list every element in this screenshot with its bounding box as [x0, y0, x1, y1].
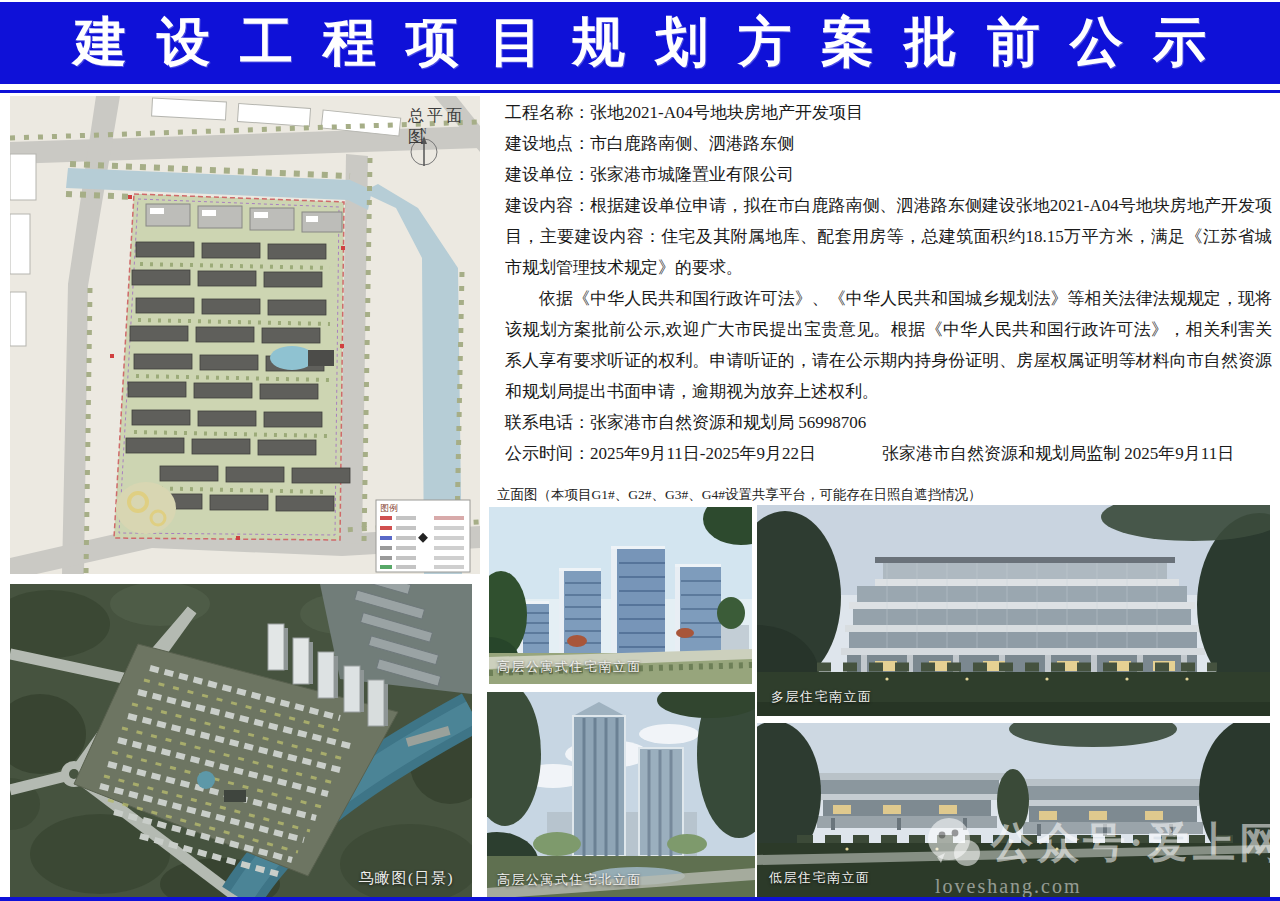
field-label: 建设内容：	[505, 196, 590, 215]
field-value: 根据建设单位申请，拟在市白鹿路南侧、泗港路东侧建设张地2021-A04号地块房地…	[505, 196, 1272, 277]
notice-poster: 建设工程项目规划方案批前公示	[0, 0, 1280, 901]
field-value: 张家港市城隆置业有限公司	[590, 165, 794, 184]
publicity-value: 2025年9月11日-2025年9月22日	[590, 444, 816, 463]
birdseye-illustration	[10, 584, 472, 898]
site-plan-illustration: N 图例	[10, 96, 480, 574]
birdseye-caption: 鸟瞰图(日景)	[359, 869, 455, 888]
field-label: 建设地点：	[505, 134, 590, 153]
contact-value: 张家港市自然资源和规划局 56998706	[590, 413, 866, 432]
notice-field: 建设单位：张家港市城隆置业有限公司	[505, 159, 1272, 190]
contact-label: 联系电话：	[505, 413, 590, 432]
plan-clubhouse	[308, 350, 334, 366]
birdseye-pond	[197, 771, 215, 789]
banner: 建设工程项目规划方案批前公示	[0, 2, 1280, 84]
notice-field: 建设内容：根据建设单位申请，拟在市白鹿路南侧、泗港路东侧建设张地2021-A04…	[505, 190, 1272, 283]
highrise-south-panel: 高层公寓式住宅南立面	[489, 507, 752, 684]
highrise-south-caption: 高层公寓式住宅南立面	[497, 658, 642, 676]
publicity-line: 公示时间：2025年9月11日-2025年9月22日张家港市自然资源和规划局监制…	[505, 438, 1272, 469]
lowrise-south-caption: 低层住宅南立面	[769, 869, 871, 887]
notice-field: 工程名称：张地2021-A04号地块房地产开发项目	[505, 97, 1272, 128]
highrise-north-caption: 高层公寓式住宅北立面	[497, 871, 642, 889]
banner-underline	[0, 90, 1280, 93]
multistory-south-caption: 多层住宅南立面	[771, 688, 873, 706]
site-plan-title: 总平面图	[408, 106, 480, 148]
supervision-text: 张家港市自然资源和规划局监制 2025年9月11日	[882, 444, 1234, 463]
plan-pond	[270, 346, 314, 370]
lowrise-south-panel: 低层住宅南立面 公众号·爱上网 loveshang.com	[757, 723, 1270, 899]
plan-legend: 图例	[376, 500, 470, 572]
publicity-label: 公示时间：	[505, 444, 590, 463]
legal-paragraph: 依据《中华人民共和国行政许可法》、《中华人民共和国城乡规划法》等相关法律法规规定…	[505, 283, 1272, 407]
multistory-south-panel: 多层住宅南立面	[757, 505, 1270, 716]
field-value: 市白鹿路南侧、泗港路东侧	[590, 134, 794, 153]
highrise-north-illustration	[487, 692, 755, 899]
contact-line: 联系电话：张家港市自然资源和规划局 56998706	[505, 407, 1272, 438]
watermark-domain: loveshang.com	[935, 875, 1082, 898]
plan-park	[116, 482, 176, 534]
field-label: 建设单位：	[505, 165, 590, 184]
bottom-strip	[0, 897, 1280, 901]
elevation-note: 立面图（本项目G1#、G2#、G3#、G4#设置共享平台，可能存在日照自遮挡情况…	[497, 486, 982, 504]
site-plan-panel: N 图例 总平面图	[10, 96, 480, 574]
notice-text-block: 工程名称：张地2021-A04号地块房地产开发项目 建设地点：市白鹿路南侧、泗港…	[505, 97, 1272, 469]
field-label: 工程名称：	[505, 103, 590, 122]
highrise-north-panel: 高层公寓式住宅北立面	[487, 692, 755, 899]
banner-title: 建设工程项目规划方案批前公示	[44, 7, 1236, 79]
legend-title: 图例	[380, 503, 398, 513]
multistory-south-illustration	[757, 505, 1270, 716]
multistory-building	[841, 557, 1205, 675]
birdseye-panel: 鸟瞰图(日景)	[10, 584, 472, 898]
notice-field: 建设地点：市白鹿路南侧、泗港路东侧	[505, 128, 1272, 159]
field-value: 张地2021-A04号地块房地产开发项目	[590, 103, 863, 122]
